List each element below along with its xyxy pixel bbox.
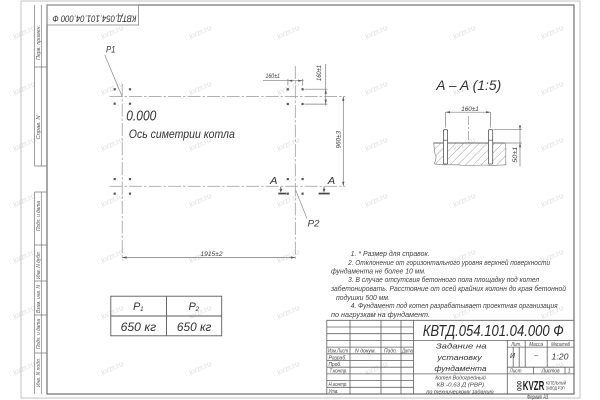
svg-text:A – A (1:5): A – A (1:5): [435, 78, 501, 93]
svg-text:Инв. N подл.: Инв. N подл.: [36, 358, 42, 387]
svg-text:Взам. инв. N: Взам. инв. N: [36, 285, 42, 313]
svg-text:Лист: Лист: [509, 368, 522, 374]
svg-text:650 кг: 650 кг: [177, 320, 212, 334]
svg-text:–: –: [533, 353, 538, 360]
svg-text:Задание на: Задание на: [436, 342, 488, 351]
svg-text:подушки 500 мм.: подушки 500 мм.: [336, 294, 390, 302]
svg-text:Подп. и дата: Подп. и дата: [36, 201, 42, 231]
svg-text:Т.контр.: Т.контр.: [330, 369, 348, 375]
svg-text:A: A: [327, 175, 336, 187]
svg-text:ЗАВОД РЭП: ЗАВОД РЭП: [546, 385, 565, 390]
svg-text:Разраб.: Разраб.: [329, 355, 347, 361]
svg-text:0.000: 0.000: [126, 109, 156, 125]
svg-text:Перв. примен.: Перв. примен.: [36, 25, 42, 60]
svg-text:Ось симетрии котла: Ось симетрии котла: [129, 129, 235, 141]
svg-text:160±1: 160±1: [461, 106, 479, 113]
svg-text:КВТД.054.101.04.000 Ф: КВТД.054.101.04.000 Ф: [423, 323, 564, 340]
svg-text:по техническому заданию: по техническому заданию: [426, 390, 493, 396]
svg-text:Н.контр.: Н.контр.: [329, 382, 348, 388]
svg-text:160±1: 160±1: [316, 65, 323, 81]
svg-text:Масштаб: Масштаб: [551, 342, 571, 348]
svg-text:3. В случае отсутсвия бетонног: 3. В случае отсутсвия бетонного пола пло…: [348, 276, 539, 284]
svg-text:P1: P1: [106, 44, 116, 55]
svg-text:4. Фундамент под котел разраба: 4. Фундамент под котел разрабатывает про…: [351, 302, 558, 310]
svg-text:Лит.: Лит.: [510, 342, 521, 348]
svg-text:2. Отклонение от горизонтально: 2. Отклонение от горизонтального уровня …: [347, 259, 550, 267]
svg-text:фундамента: фундамента: [434, 364, 487, 373]
svg-text:Инв. N дубл.: Инв. N дубл.: [36, 251, 42, 279]
svg-text:N докум.: N докум.: [355, 348, 376, 354]
svg-text:1: 1: [568, 368, 571, 374]
svg-text:P2: P2: [308, 219, 321, 230]
svg-text:Изм.Лист: Изм.Лист: [328, 348, 348, 354]
svg-text:установку: установку: [436, 353, 483, 362]
svg-text:Справ. N: Справ. N: [36, 115, 42, 139]
svg-text:Листов: Листов: [541, 368, 560, 374]
svg-text:1. * Размер для справок.: 1. * Размер для справок.: [351, 250, 430, 258]
svg-text:Котел Водогрейный: Котел Водогрейный: [435, 375, 486, 382]
svg-text:по нагрузкам на фундамент.: по нагрузкам на фундамент.: [331, 311, 430, 319]
svg-text:1915±2: 1915±2: [201, 251, 223, 258]
svg-text:фундамента не более 10 мм.: фундамента не более 10 мм.: [331, 267, 426, 275]
svg-text:КВ -0,63 Д (РВР): КВ -0,63 Д (РВР): [437, 383, 485, 389]
svg-text:Формат А3: Формат А3: [527, 395, 548, 400]
svg-text:960±3: 960±3: [336, 131, 343, 149]
svg-text:650 кг: 650 кг: [121, 320, 157, 334]
svg-text:160±1: 160±1: [266, 73, 281, 80]
svg-text:КВТД.054.101.04.000 Ф: КВТД.054.101.04.000 Ф: [53, 14, 137, 24]
svg-text:Дата: Дата: [401, 348, 413, 354]
svg-text:Утв.: Утв.: [328, 389, 339, 395]
svg-text:A: A: [269, 175, 278, 187]
svg-text:1: 1: [140, 306, 144, 313]
svg-text:Подп.: Подп.: [384, 348, 397, 354]
svg-text:забетонировать. Расстояние от: забетонировать. Расстояние от осей крайн…: [330, 285, 566, 293]
svg-text:Масса: Масса: [529, 342, 543, 348]
svg-text:50±1: 50±1: [512, 146, 519, 162]
svg-text:Проб.: Проб.: [329, 362, 342, 368]
svg-text:KVZR: KVZR: [523, 379, 545, 393]
svg-text:Подп. и дата: Подп. и дата: [36, 319, 42, 349]
svg-text:1:20: 1:20: [552, 352, 569, 362]
svg-text:2: 2: [195, 306, 200, 313]
